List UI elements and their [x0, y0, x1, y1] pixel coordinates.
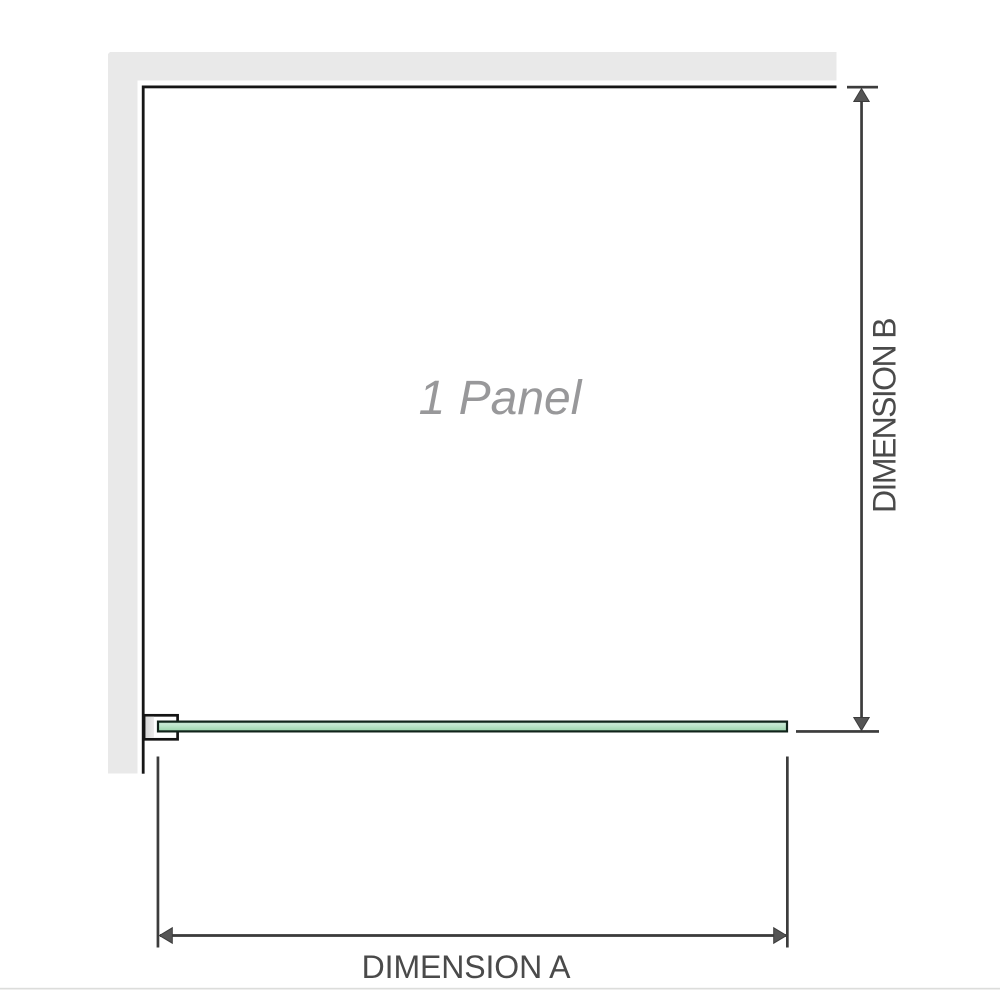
svg-text:1 Panel: 1 Panel [419, 372, 583, 425]
svg-text:DIMENSION A: DIMENSION A [362, 949, 571, 985]
svg-text:DIMENSION B: DIMENSION B [867, 319, 903, 513]
